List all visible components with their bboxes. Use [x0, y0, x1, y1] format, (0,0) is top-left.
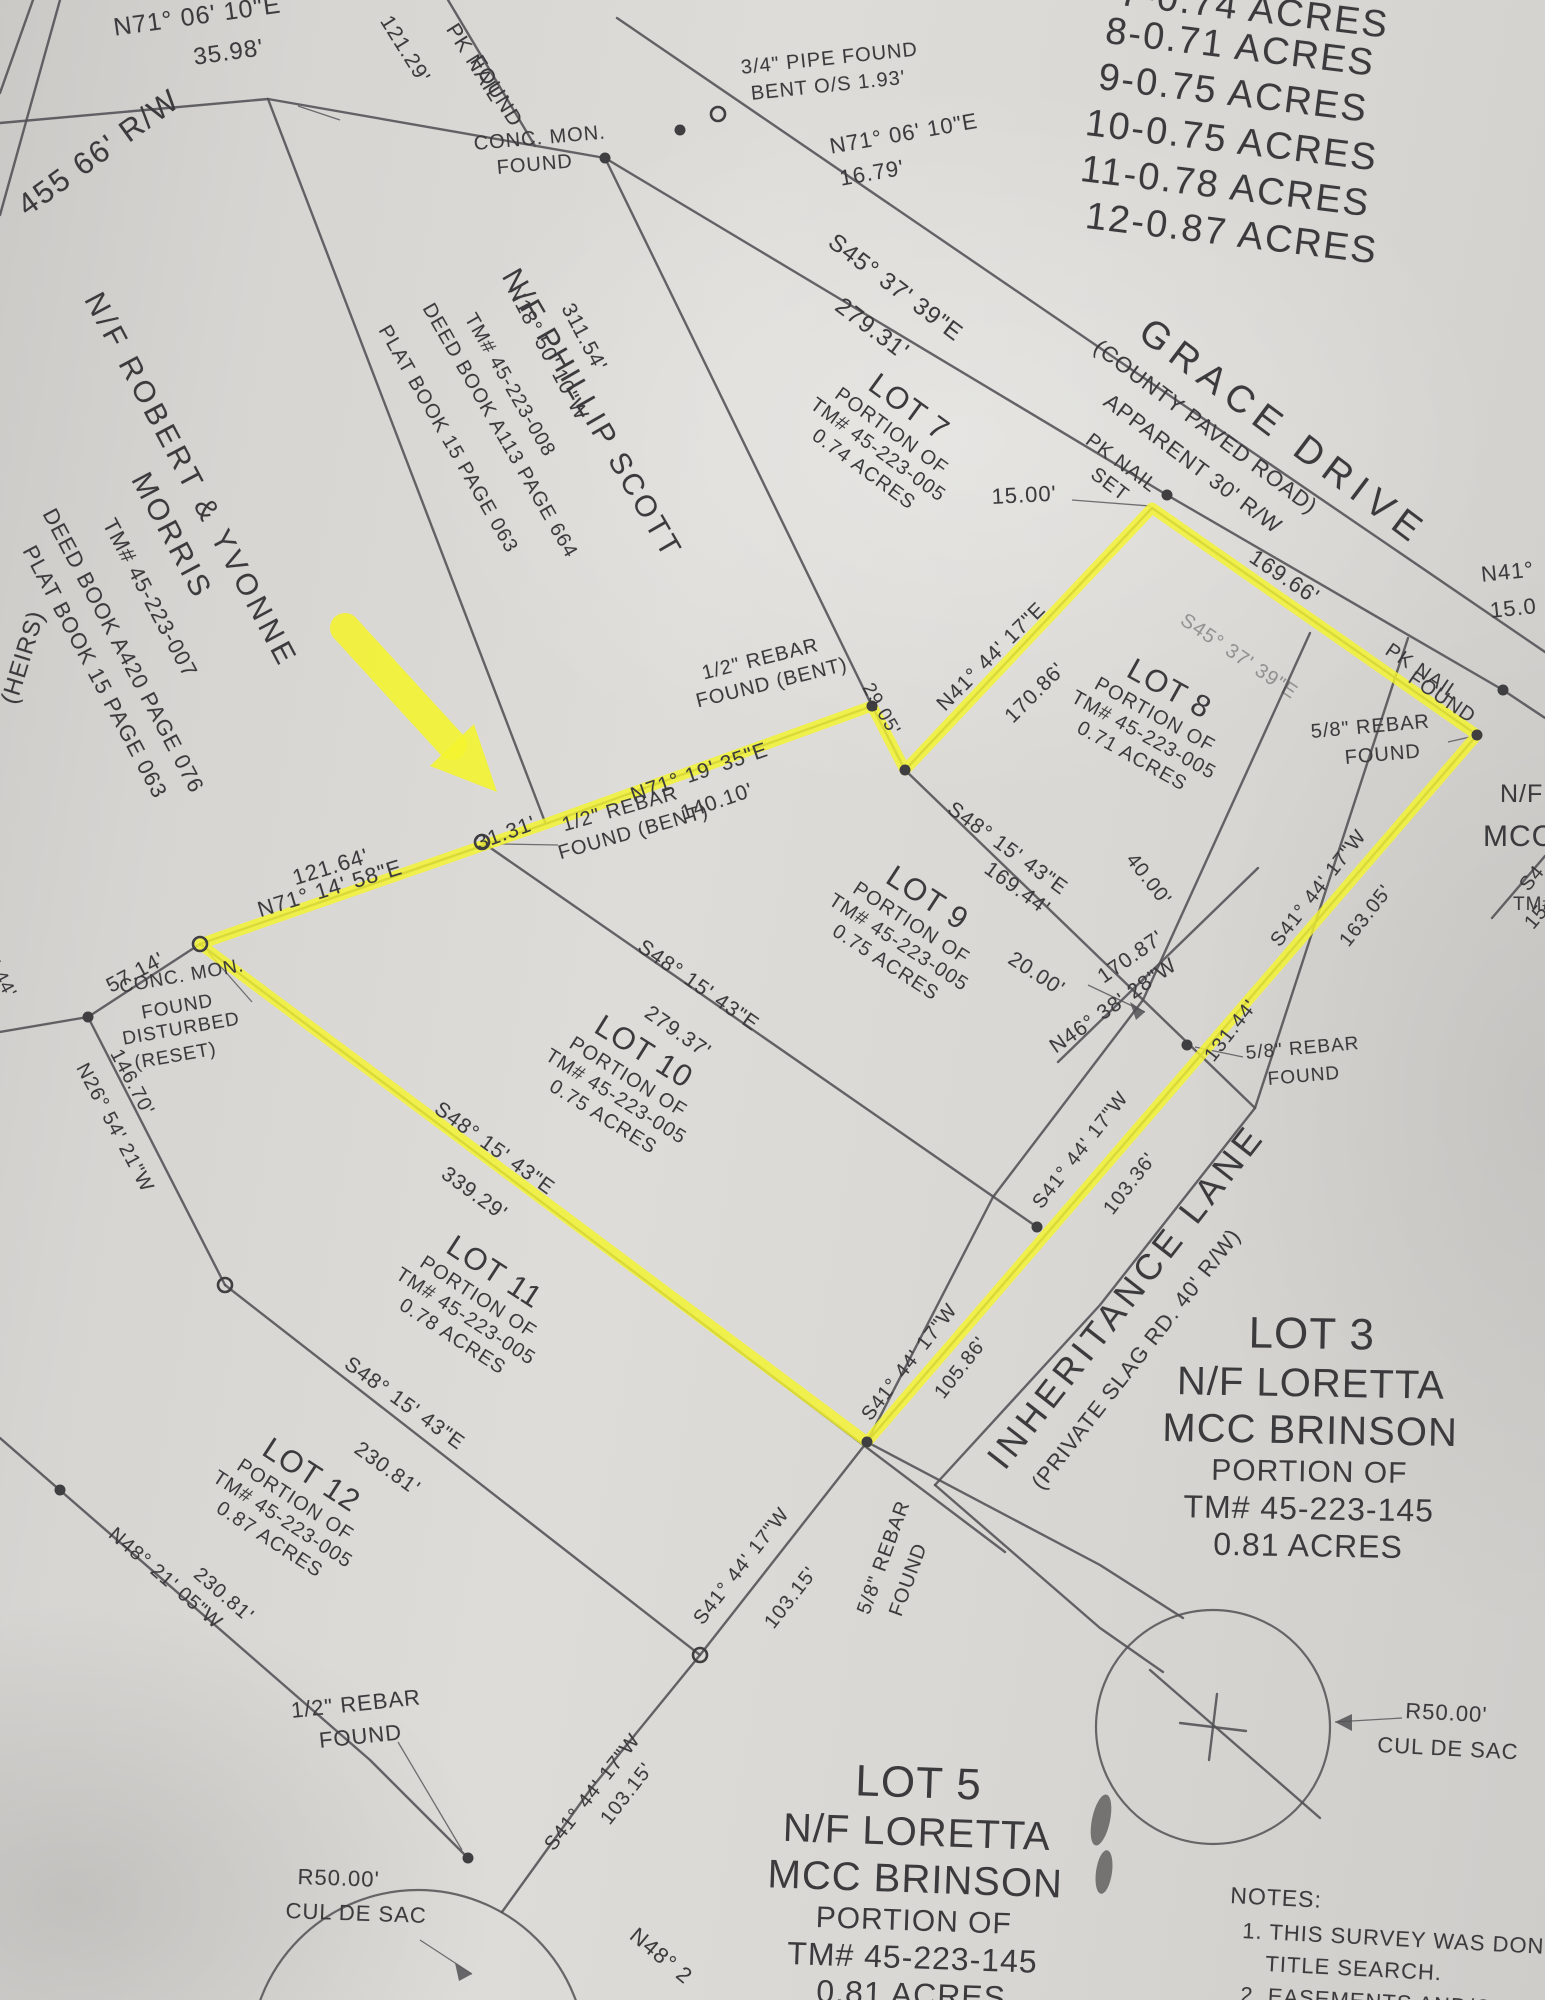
r50-right-1: R50.00' [1405, 1700, 1488, 1726]
monument-node [83, 1012, 94, 1023]
monument-node [862, 1437, 873, 1448]
boundary-line [0, 0, 33, 93]
monument-node [463, 1853, 474, 1864]
lot3-block-line: TM# 45-223-145 [1161, 1487, 1457, 1530]
monument-node [600, 153, 611, 164]
leader-arrowhead [1335, 1714, 1352, 1731]
monument-node [1162, 490, 1173, 501]
lot5-block: LOT 5N/F LORETTAMCC BRINSONPORTION OFTM#… [763, 1752, 1067, 2000]
scan-artifact [1093, 1849, 1115, 1895]
leader-line [1072, 500, 1150, 506]
dist-15-00: 15.00' [991, 483, 1057, 508]
lot3-block-line: 0.81 ACRES [1160, 1525, 1456, 1568]
monument-node-open [711, 107, 725, 121]
boundary-line [617, 18, 1545, 652]
plat-linework [0, 0, 1545, 2000]
edge-nf-partial: N/F [1500, 782, 1543, 807]
boundary-line [1150, 1670, 1320, 1818]
r50-left-1: R50.00' [297, 1866, 380, 1891]
edge-mcc-partial: MCC [1483, 822, 1545, 852]
monument-node [1032, 1222, 1043, 1233]
notes-title: NOTES: [1230, 1884, 1323, 1912]
leader-line [420, 1940, 472, 1974]
r50-left-2: CUL DE SAC [285, 1900, 427, 1927]
boundary-line [605, 158, 1545, 718]
scan-artifact [1087, 1793, 1115, 1848]
lot3-block-line: N/F LORETTA [1163, 1358, 1459, 1410]
survey-plat-scan: N71° 06' 10"E35.98'455 66' R/W121.29'PK … [0, 0, 1545, 2000]
edge-15-partial: 15.0 [1489, 595, 1538, 622]
edge-n41-partial: N41° [1480, 558, 1535, 585]
monument-node [1498, 685, 1509, 696]
monument-node [1182, 1040, 1193, 1051]
lot3-block-line: LOT 3 [1164, 1306, 1460, 1363]
lot3-block: LOT 3N/F LORETTAMCC BRINSONPORTION OFTM#… [1160, 1306, 1460, 1568]
monument-node [1472, 730, 1483, 741]
monument-node [900, 765, 911, 776]
monument-node [675, 125, 686, 136]
monument-node [55, 1485, 66, 1496]
lot3-block-line: MCC BRINSON [1162, 1405, 1458, 1457]
boundary-line [935, 1485, 1163, 1672]
lot3-block-line: PORTION OF [1161, 1452, 1457, 1493]
highlight-arrow-shaft [345, 628, 452, 745]
